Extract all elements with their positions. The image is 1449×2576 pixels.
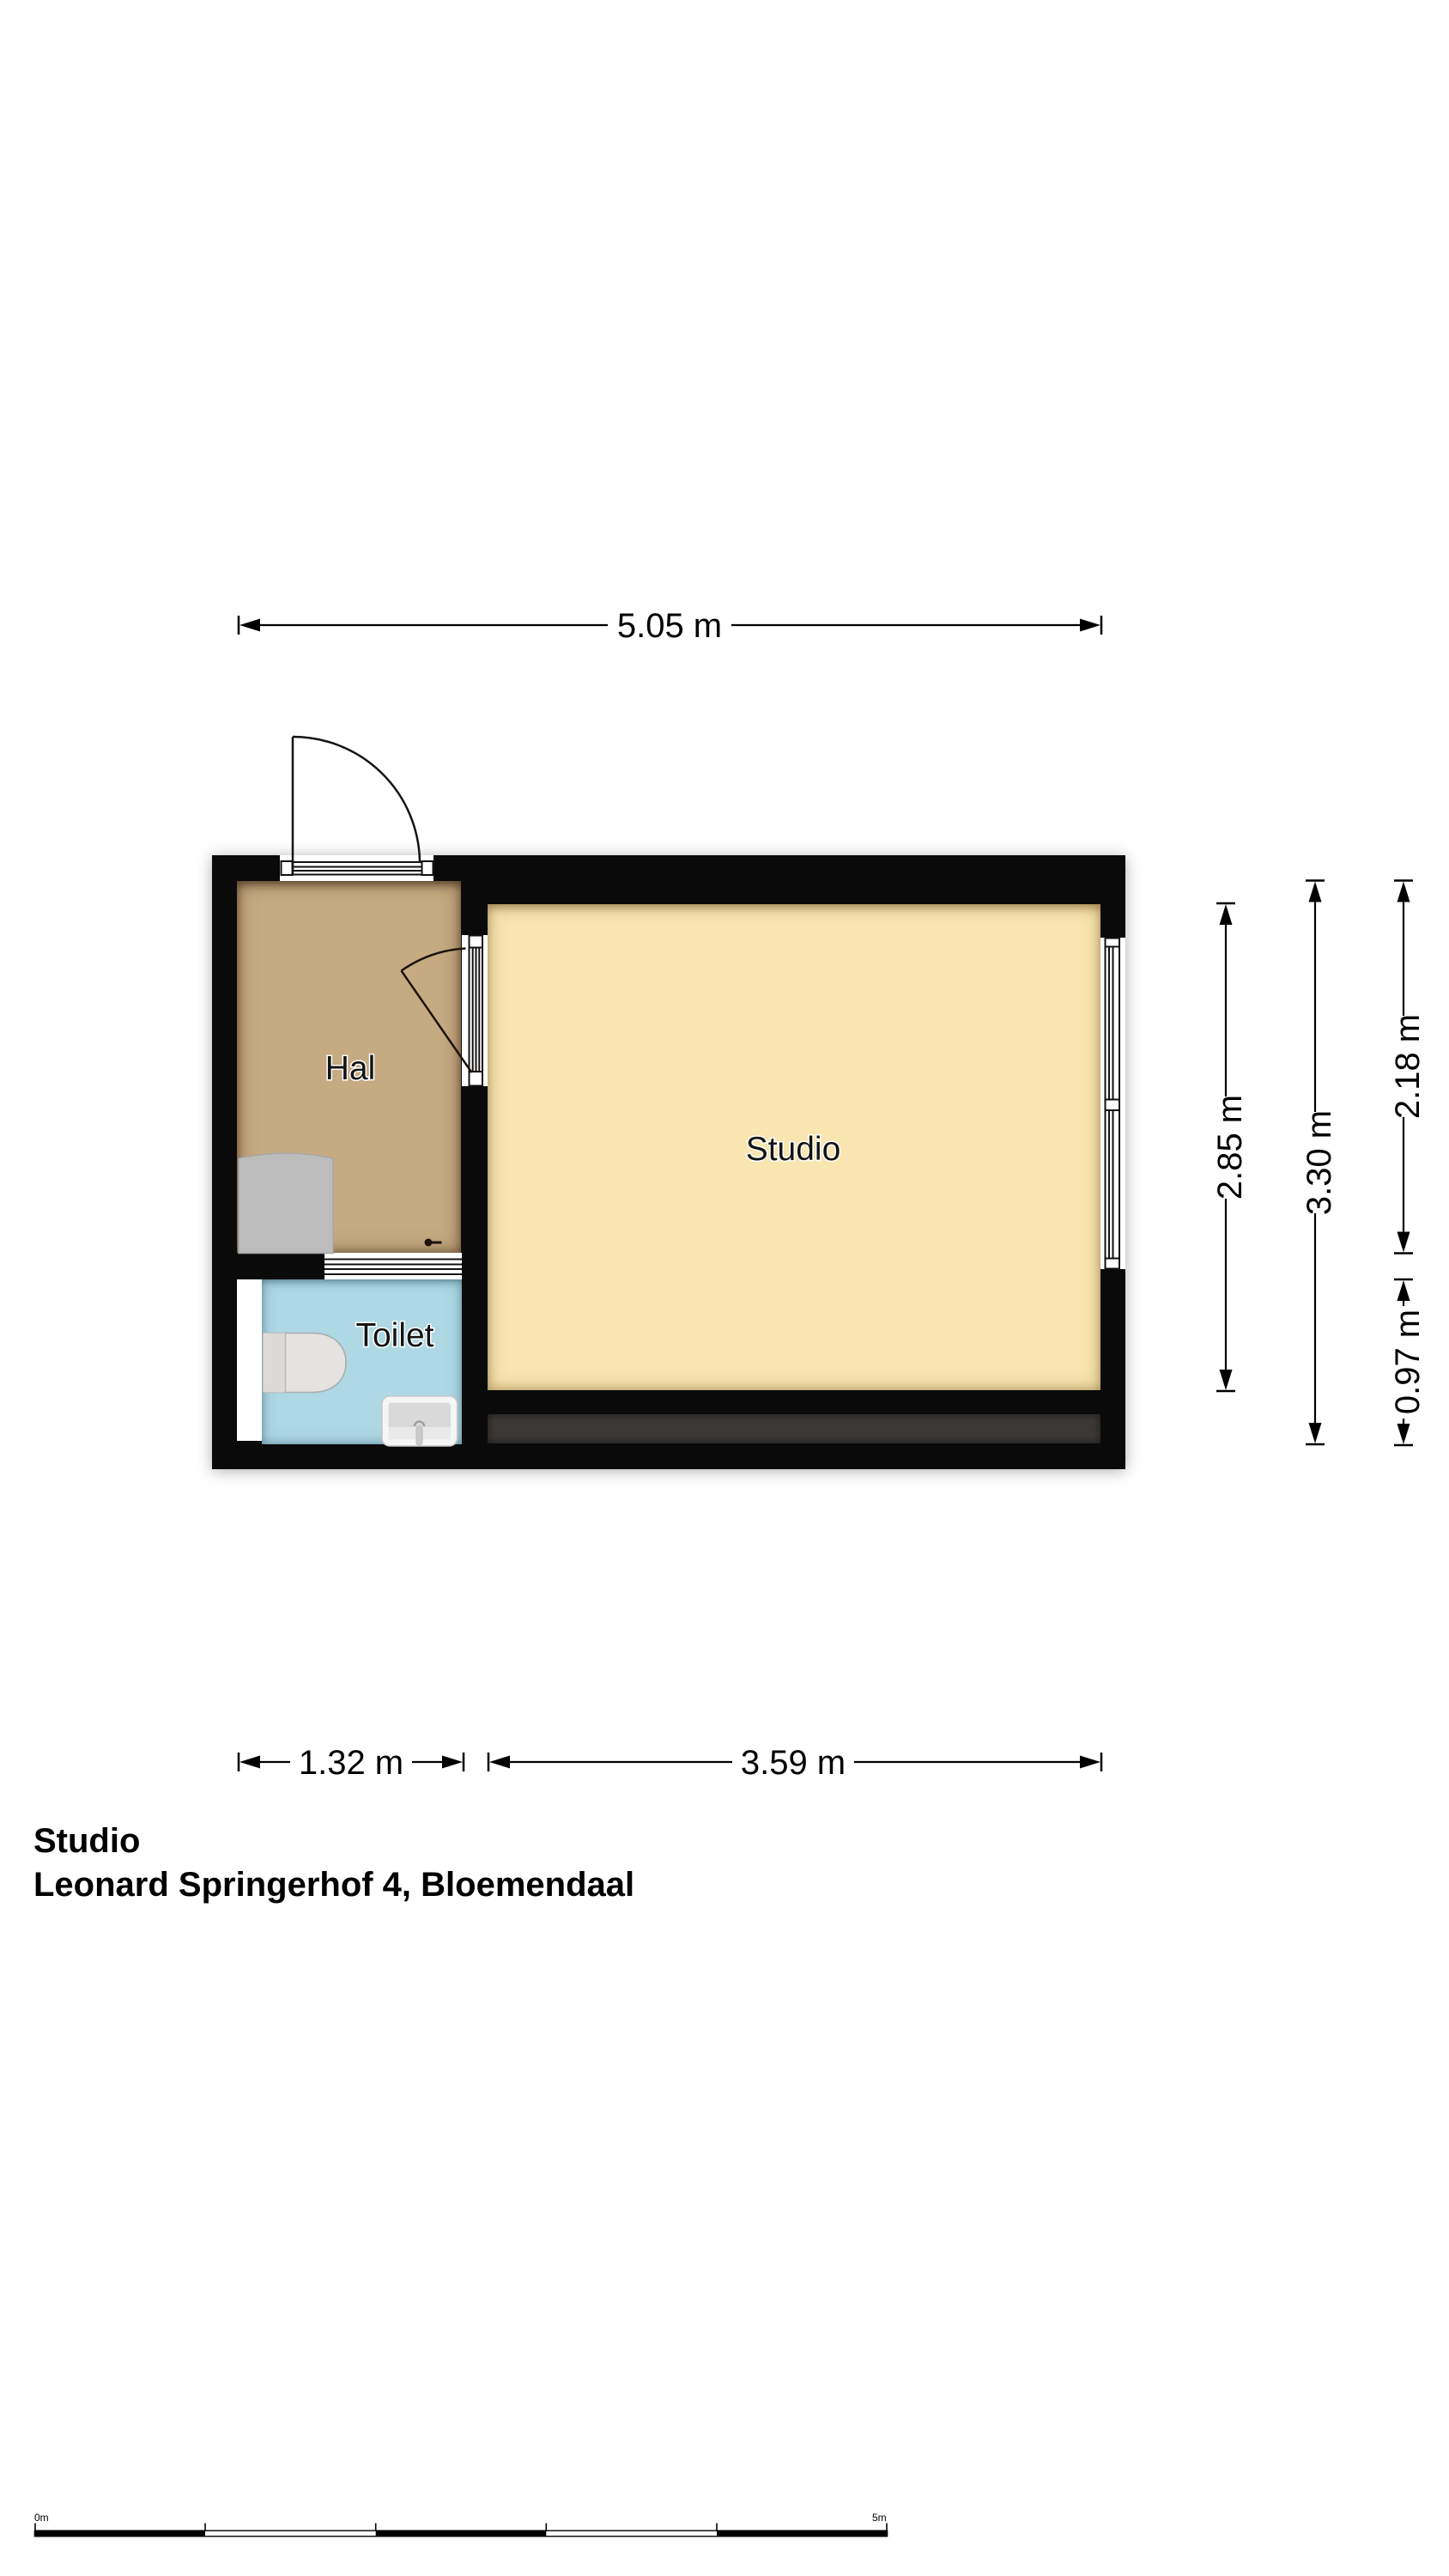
svg-text:5m: 5m: [872, 2512, 887, 2524]
svg-text:Leonard Springerhof 4, Bloemen: Leonard Springerhof 4, Bloemendaal: [33, 1866, 634, 1904]
svg-text:Studio: Studio: [746, 1131, 841, 1168]
svg-text:3.59 m: 3.59 m: [741, 1744, 846, 1782]
svg-text:5.05 m: 5.05 m: [617, 607, 722, 645]
svg-text:0.97 m: 0.97 m: [1389, 1309, 1427, 1414]
svg-text:0m: 0m: [34, 2512, 49, 2524]
svg-text:2.18 m: 2.18 m: [1389, 1014, 1427, 1119]
svg-text:Toilet: Toilet: [355, 1317, 433, 1354]
svg-text:2.85 m: 2.85 m: [1211, 1095, 1249, 1200]
svg-text:Studio: Studio: [33, 1822, 140, 1860]
svg-text:3.30 m: 3.30 m: [1300, 1110, 1338, 1215]
svg-text:Hal: Hal: [325, 1050, 376, 1087]
svg-text:1.32 m: 1.32 m: [299, 1744, 403, 1782]
